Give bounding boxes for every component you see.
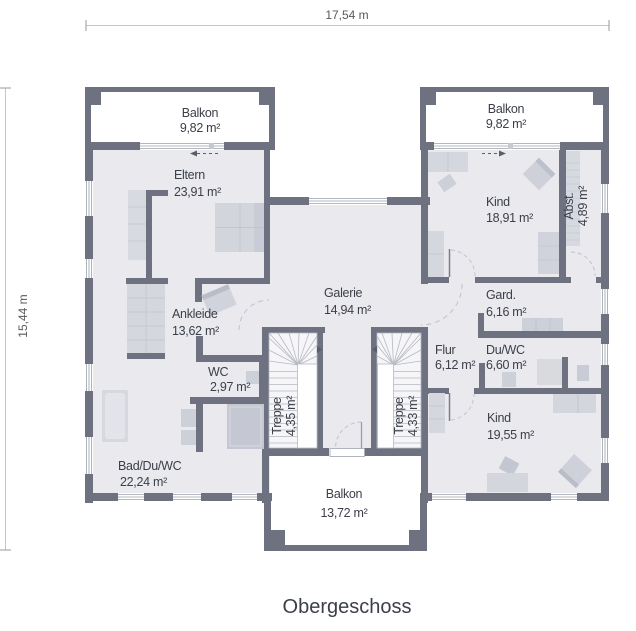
svg-text:Eltern: Eltern xyxy=(174,168,205,182)
svg-text:Treppe: Treppe xyxy=(270,397,284,435)
svg-text:4,35 m²: 4,35 m² xyxy=(284,396,298,436)
svg-text:Du/WC: Du/WC xyxy=(486,343,525,357)
svg-text:Flur: Flur xyxy=(435,343,455,357)
svg-text:Treppe: Treppe xyxy=(392,397,406,435)
svg-text:Balkon: Balkon xyxy=(326,487,363,501)
svg-text:Ankleide: Ankleide xyxy=(172,307,218,321)
svg-text:Kind: Kind xyxy=(486,195,510,209)
svg-text:4,33 m²: 4,33 m² xyxy=(406,396,420,436)
svg-text:22,24 m²: 22,24 m² xyxy=(120,475,167,489)
svg-text:Kind: Kind xyxy=(487,411,511,425)
svg-text:13,62 m²: 13,62 m² xyxy=(172,324,219,338)
svg-text:9,82 m²: 9,82 m² xyxy=(180,121,220,135)
svg-text:Balkon: Balkon xyxy=(488,102,525,116)
svg-text:2,97 m²: 2,97 m² xyxy=(210,380,250,394)
svg-text:Abst.: Abst. xyxy=(562,193,576,220)
svg-text:17,54 m: 17,54 m xyxy=(325,8,368,22)
svg-text:13,72 m²: 13,72 m² xyxy=(321,506,368,520)
svg-text:6,60 m²: 6,60 m² xyxy=(486,358,526,372)
svg-text:Bad/Du/WC: Bad/Du/WC xyxy=(118,459,182,473)
svg-text:WC: WC xyxy=(208,365,228,379)
svg-text:9,82 m²: 9,82 m² xyxy=(486,117,526,131)
svg-text:23,91 m²: 23,91 m² xyxy=(174,185,221,199)
svg-text:Gard.: Gard. xyxy=(486,288,516,302)
svg-text:19,55 m²: 19,55 m² xyxy=(487,428,534,442)
svg-text:14,94 m²: 14,94 m² xyxy=(324,303,371,317)
svg-text:6,12 m²: 6,12 m² xyxy=(435,358,475,372)
svg-text:Obergeschoss: Obergeschoss xyxy=(283,596,412,618)
svg-text:6,16 m²: 6,16 m² xyxy=(486,305,526,319)
svg-text:18,91 m²: 18,91 m² xyxy=(486,211,533,225)
svg-text:Balkon: Balkon xyxy=(182,106,219,120)
svg-text:4,89 m²: 4,89 m² xyxy=(576,186,590,226)
svg-text:Galerie: Galerie xyxy=(324,286,363,300)
svg-text:15,44 m: 15,44 m xyxy=(16,294,30,337)
